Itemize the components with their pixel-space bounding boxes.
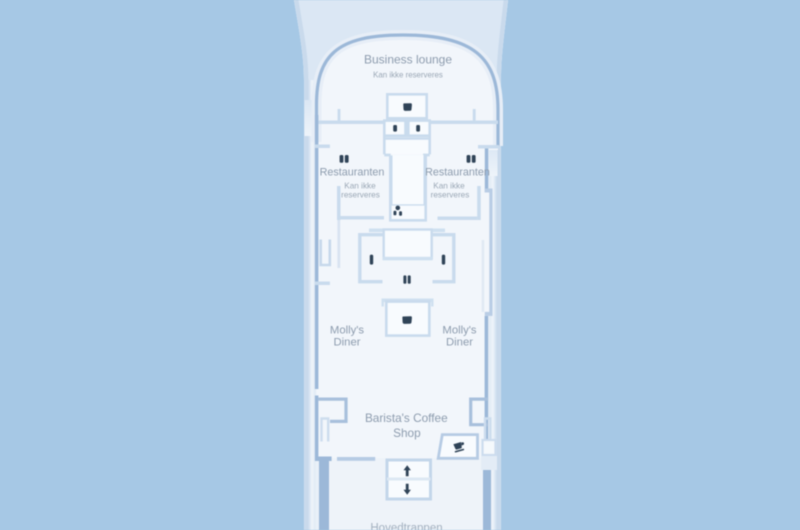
svg-text:Restauranten: Restauranten <box>320 167 385 179</box>
svg-text:Kan ikke reserveres: Kan ikke reserveres <box>373 71 443 80</box>
svg-text:Molly's: Molly's <box>330 325 365 337</box>
svg-text:Restauranten: Restauranten <box>425 167 490 179</box>
svg-text:Shop: Shop <box>393 426 421 440</box>
svg-text:Business lounge: Business lounge <box>364 53 452 67</box>
svg-text:Barista's Coffee: Barista's Coffee <box>365 411 448 425</box>
svg-text:Kan ikke: Kan ikke <box>433 181 465 190</box>
svg-text:Diner: Diner <box>334 336 361 348</box>
svg-text:reserveres: reserveres <box>431 190 470 199</box>
svg-text:reserveres: reserveres <box>341 190 380 199</box>
svg-text:Kan ikke: Kan ikke <box>344 181 376 190</box>
svg-text:Molly's: Molly's <box>442 325 477 337</box>
svg-text:Hovedtrappen: Hovedtrappen <box>370 523 442 530</box>
svg-text:Diner: Diner <box>446 336 473 348</box>
